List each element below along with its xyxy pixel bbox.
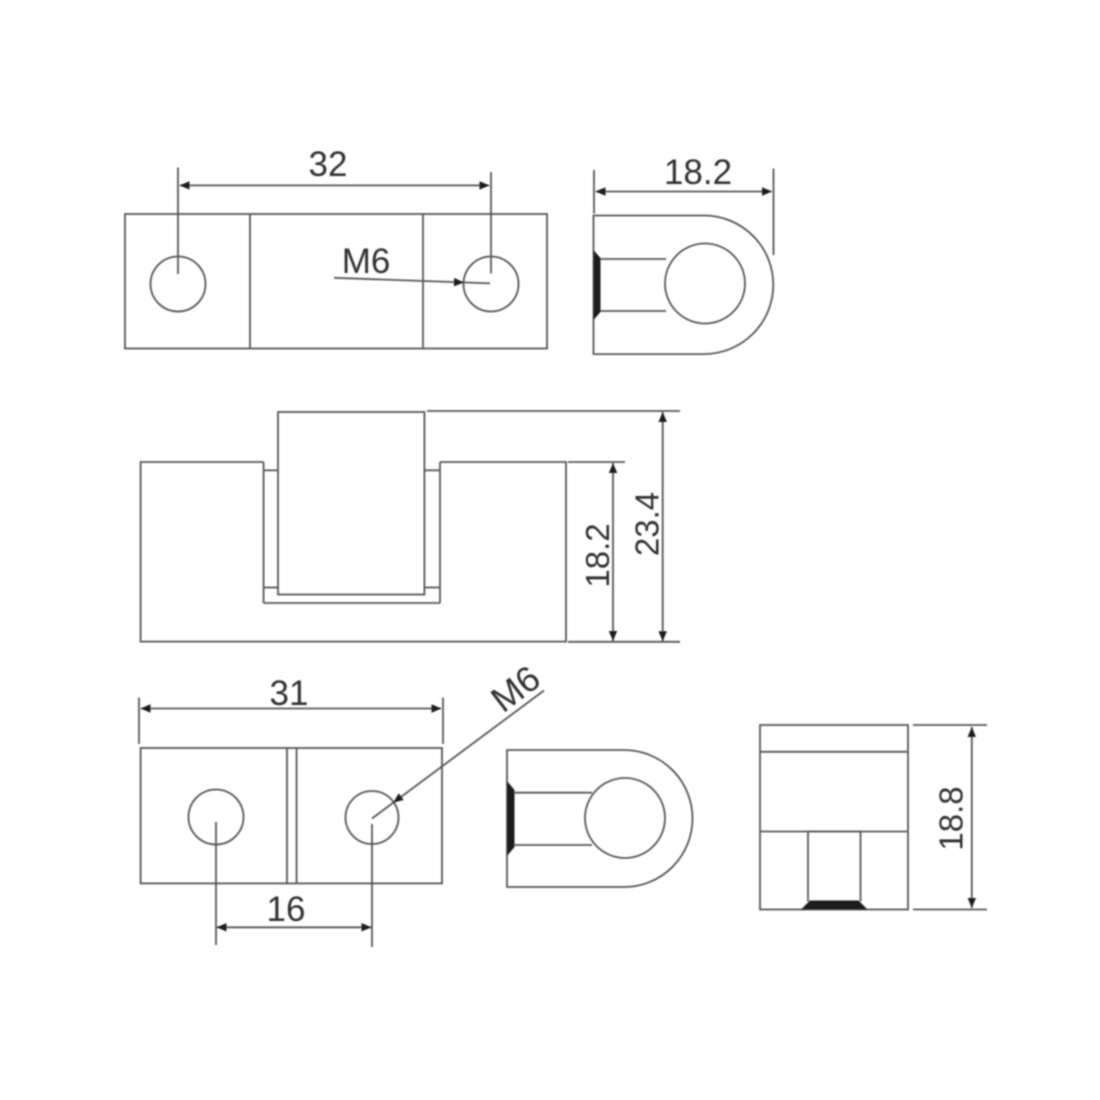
svg-text:M6: M6 <box>342 242 391 281</box>
svg-text:32: 32 <box>309 145 348 184</box>
svg-text:18.8: 18.8 <box>933 786 970 850</box>
svg-text:18.2: 18.2 <box>664 153 732 192</box>
svg-text:31: 31 <box>270 674 309 713</box>
svg-text:18.2: 18.2 <box>579 523 616 587</box>
svg-text:16: 16 <box>267 890 306 929</box>
svg-text:M6: M6 <box>483 657 548 720</box>
svg-text:23.4: 23.4 <box>629 492 666 556</box>
